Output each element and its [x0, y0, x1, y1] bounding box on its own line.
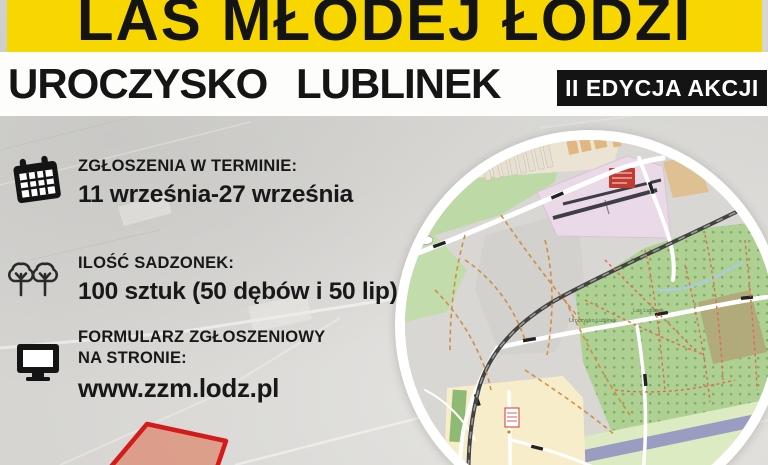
- poster-title: LAS MŁODEJ ŁODZI: [7, 0, 762, 52]
- form-info: FORMULARZ ZGŁOSZENIOWY NA STRONIE: www.z…: [78, 327, 325, 402]
- registration-info: ZGŁOSZENIA W TERMINIE: 11 września-27 wr…: [78, 156, 353, 208]
- title-banner: LAS MŁODEJ ŁODZI: [7, 0, 762, 52]
- form-website-link[interactable]: www.zzm.lodz.pl: [78, 375, 325, 402]
- poster-subtitle: UROCZYSKO LUBLINEK: [8, 54, 500, 114]
- form-heading-line1: FORMULARZ ZGŁOSZENIOWY: [78, 327, 325, 348]
- poster: Skła: [0, 0, 768, 465]
- seedlings-count: 100 sztuk (50 dębów i 50 lip): [78, 278, 397, 305]
- registration-dates: 11 września-27 września: [78, 181, 353, 208]
- trees-icon: [7, 260, 63, 302]
- map-art: Las Lublinek Uroczysko Lublinek: [405, 140, 768, 465]
- map-label-uroczysko: Uroczysko Lublinek: [569, 318, 617, 324]
- edition-badge: II EDYCJA AKCJI: [557, 70, 767, 106]
- monitor-icon: [15, 342, 61, 382]
- subtitle-band: UROCZYSKO LUBLINEK II EDYCJA AKCJI: [0, 52, 768, 116]
- seedlings-heading: ILOŚĆ SADZONEK:: [78, 253, 397, 274]
- form-heading-line2: NA STRONIE:: [78, 348, 325, 369]
- map-label-las-lublinek: Las Lublinek: [633, 308, 664, 314]
- calendar-icon: [9, 152, 66, 210]
- seedlings-info: ILOŚĆ SADZONEK: 100 sztuk (50 dębów i 50…: [78, 253, 397, 305]
- registration-heading: ZGŁOSZENIA W TERMINIE:: [78, 156, 353, 177]
- map-route-shield: [417, 236, 433, 245]
